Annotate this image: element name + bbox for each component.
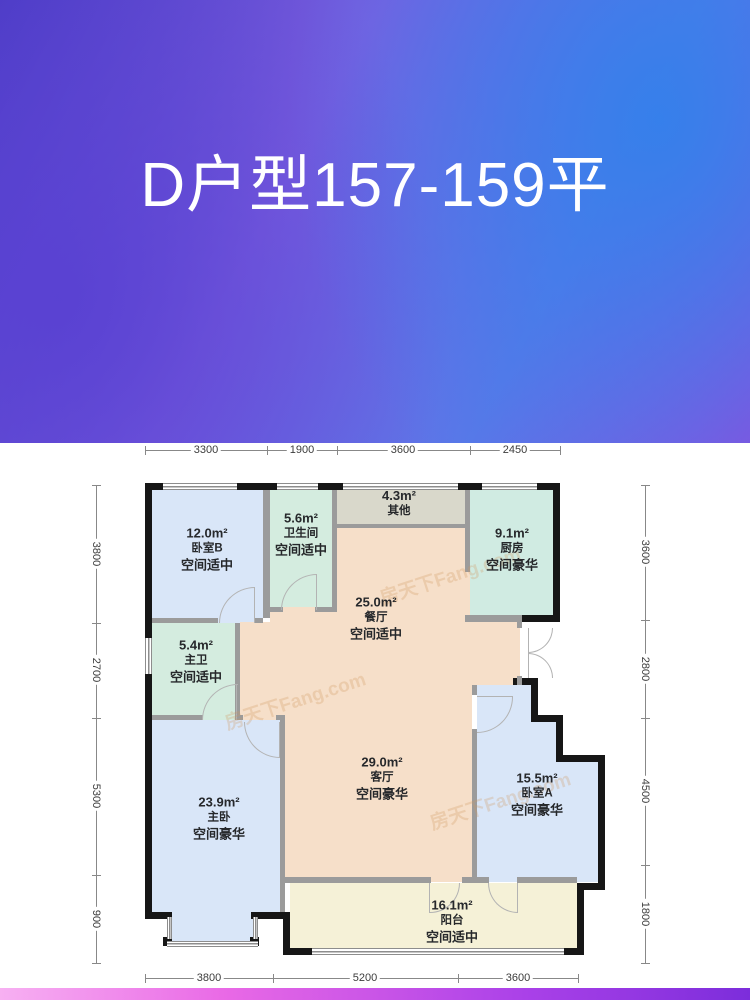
exterior-wall [145,483,152,638]
room-grade: 空间适中 [170,669,222,686]
room-label-bedroom-b: 12.0m² 卧室B 空间适中 [181,524,233,573]
room-area: 29.0m² [356,753,408,770]
window [163,483,237,490]
exterior-wall [577,883,584,955]
floorplan-page: D户型157-159平 [0,0,750,1000]
room-label-master-bedroom: 23.9m² 主卧 空间豪华 [193,793,245,842]
interior-wall [332,490,337,612]
bottom-gradient-strip [0,988,750,1000]
room-name: 主卫 [170,653,222,668]
room-name: 主卧 [193,810,245,825]
room-name: 其他 [382,504,416,519]
dimension-tick [145,446,146,455]
dimension-tick [578,974,579,983]
room-label-bedroom-a: 15.5m² 卧室A 空间豪华 [511,769,563,818]
door-leaf [528,628,529,678]
room-grade: 空间适中 [181,557,233,574]
room-name: 客厅 [356,770,408,785]
interior-wall [280,720,285,912]
dimension-label: 3300 [191,444,221,456]
dimension-tick [92,718,101,719]
exterior-wall [145,674,152,912]
room-area: 23.9m² [193,793,245,810]
dimension-tick [92,485,101,486]
room-grade: 空间豪华 [193,826,245,843]
interior-wall [465,615,522,622]
dimension-tick [458,974,459,983]
door-leaf [477,696,513,697]
dimension-label: 2450 [500,444,530,456]
dimension-tick [92,623,101,624]
room-label-balcony: 16.1m² 阳台 空间适中 [426,896,478,945]
dimension-tick [641,485,650,486]
room-area: 16.1m² [426,896,478,913]
dimension-tick [267,446,268,455]
window [312,948,564,955]
room-area: 5.6m² [275,509,327,526]
dimension-label: 3600 [503,972,533,984]
room-name: 卫生间 [275,526,327,541]
room-area: 5.4m² [170,636,222,653]
dimension-label: 2700 [90,655,102,685]
dimension-tick [560,446,561,455]
interior-wall [337,524,465,528]
exterior-wall [283,912,290,955]
interior-wall [254,618,263,623]
window [482,483,537,490]
dimension-label: 4500 [639,776,651,806]
room-name: 餐厅 [350,610,402,625]
dimension-label: 5300 [90,781,102,811]
door-leaf [279,722,280,758]
exterior-wall [564,948,584,955]
door-leaf [254,587,255,623]
door-leaf [517,883,518,913]
room-grade: 空间适中 [350,626,402,643]
room-area: 12.0m² [181,524,233,541]
dimension-label: 3800 [194,972,224,984]
page-title: D户型157-159平 [0,134,750,224]
bay-window [253,917,258,939]
interior-wall [315,607,332,612]
interior-wall [462,877,489,883]
dimension-tick [641,620,650,621]
dimension-tick [92,875,101,876]
room-label-dining: 25.0m² 餐厅 空间适中 [350,593,402,642]
dimension-tick [641,865,650,866]
room-grade: 空间豪华 [486,557,538,574]
interior-wall [472,685,477,695]
room-grade: 空间豪华 [511,802,563,819]
interior-wall [517,676,522,685]
room-grade: 空间豪华 [356,786,408,803]
room-fill-master-bay [167,912,258,943]
dimension-label: 3600 [639,537,651,567]
interior-wall [263,490,270,618]
room-name: 厨房 [486,541,538,556]
dimension-tick [641,963,650,964]
room-label-living: 29.0m² 客厅 空间豪华 [356,753,408,802]
bay-window [167,941,258,947]
dimension-label: 900 [90,907,102,931]
window [145,638,152,674]
exterior-wall [553,483,560,622]
dimension-label: 3600 [388,444,418,456]
room-label-other: 4.3m² 其他 [382,487,416,519]
room-name: 卧室B [181,541,233,556]
dimension-label: 3800 [90,539,102,569]
dimension-tick [470,446,471,455]
room-area: 25.0m² [350,593,402,610]
room-area: 9.1m² [486,524,538,541]
interior-wall [152,618,218,623]
window [277,483,318,490]
room-area: 15.5m² [511,769,563,786]
exterior-wall [520,615,560,622]
dimension-label: 1900 [287,444,317,456]
dimension-tick [337,446,338,455]
room-grade: 空间适中 [426,929,478,946]
exterior-wall [598,755,605,890]
room-name: 阳台 [426,913,478,928]
interior-wall [152,715,203,720]
dimension-tick [273,974,274,983]
interior-wall [517,877,577,883]
room-label-master-bath: 5.4m² 主卫 空间适中 [170,636,222,685]
door-leaf [316,574,317,610]
room-grade: 空间适中 [275,542,327,559]
dimension-label: 1800 [639,899,651,929]
room-label-kitchen: 9.1m² 厨房 空间豪华 [486,524,538,573]
room-label-bathroom: 5.6m² 卫生间 空间适中 [275,509,327,558]
dimension-tick [641,718,650,719]
dimension-label: 5200 [350,972,380,984]
bay-window [167,917,172,939]
interior-wall [285,877,431,883]
interior-wall [517,622,522,628]
room-name: 卧室A [511,786,563,801]
dimension-label: 2800 [639,654,651,684]
room-area: 4.3m² [382,487,416,504]
dimension-tick [92,963,101,964]
dimension-tick [145,974,146,983]
